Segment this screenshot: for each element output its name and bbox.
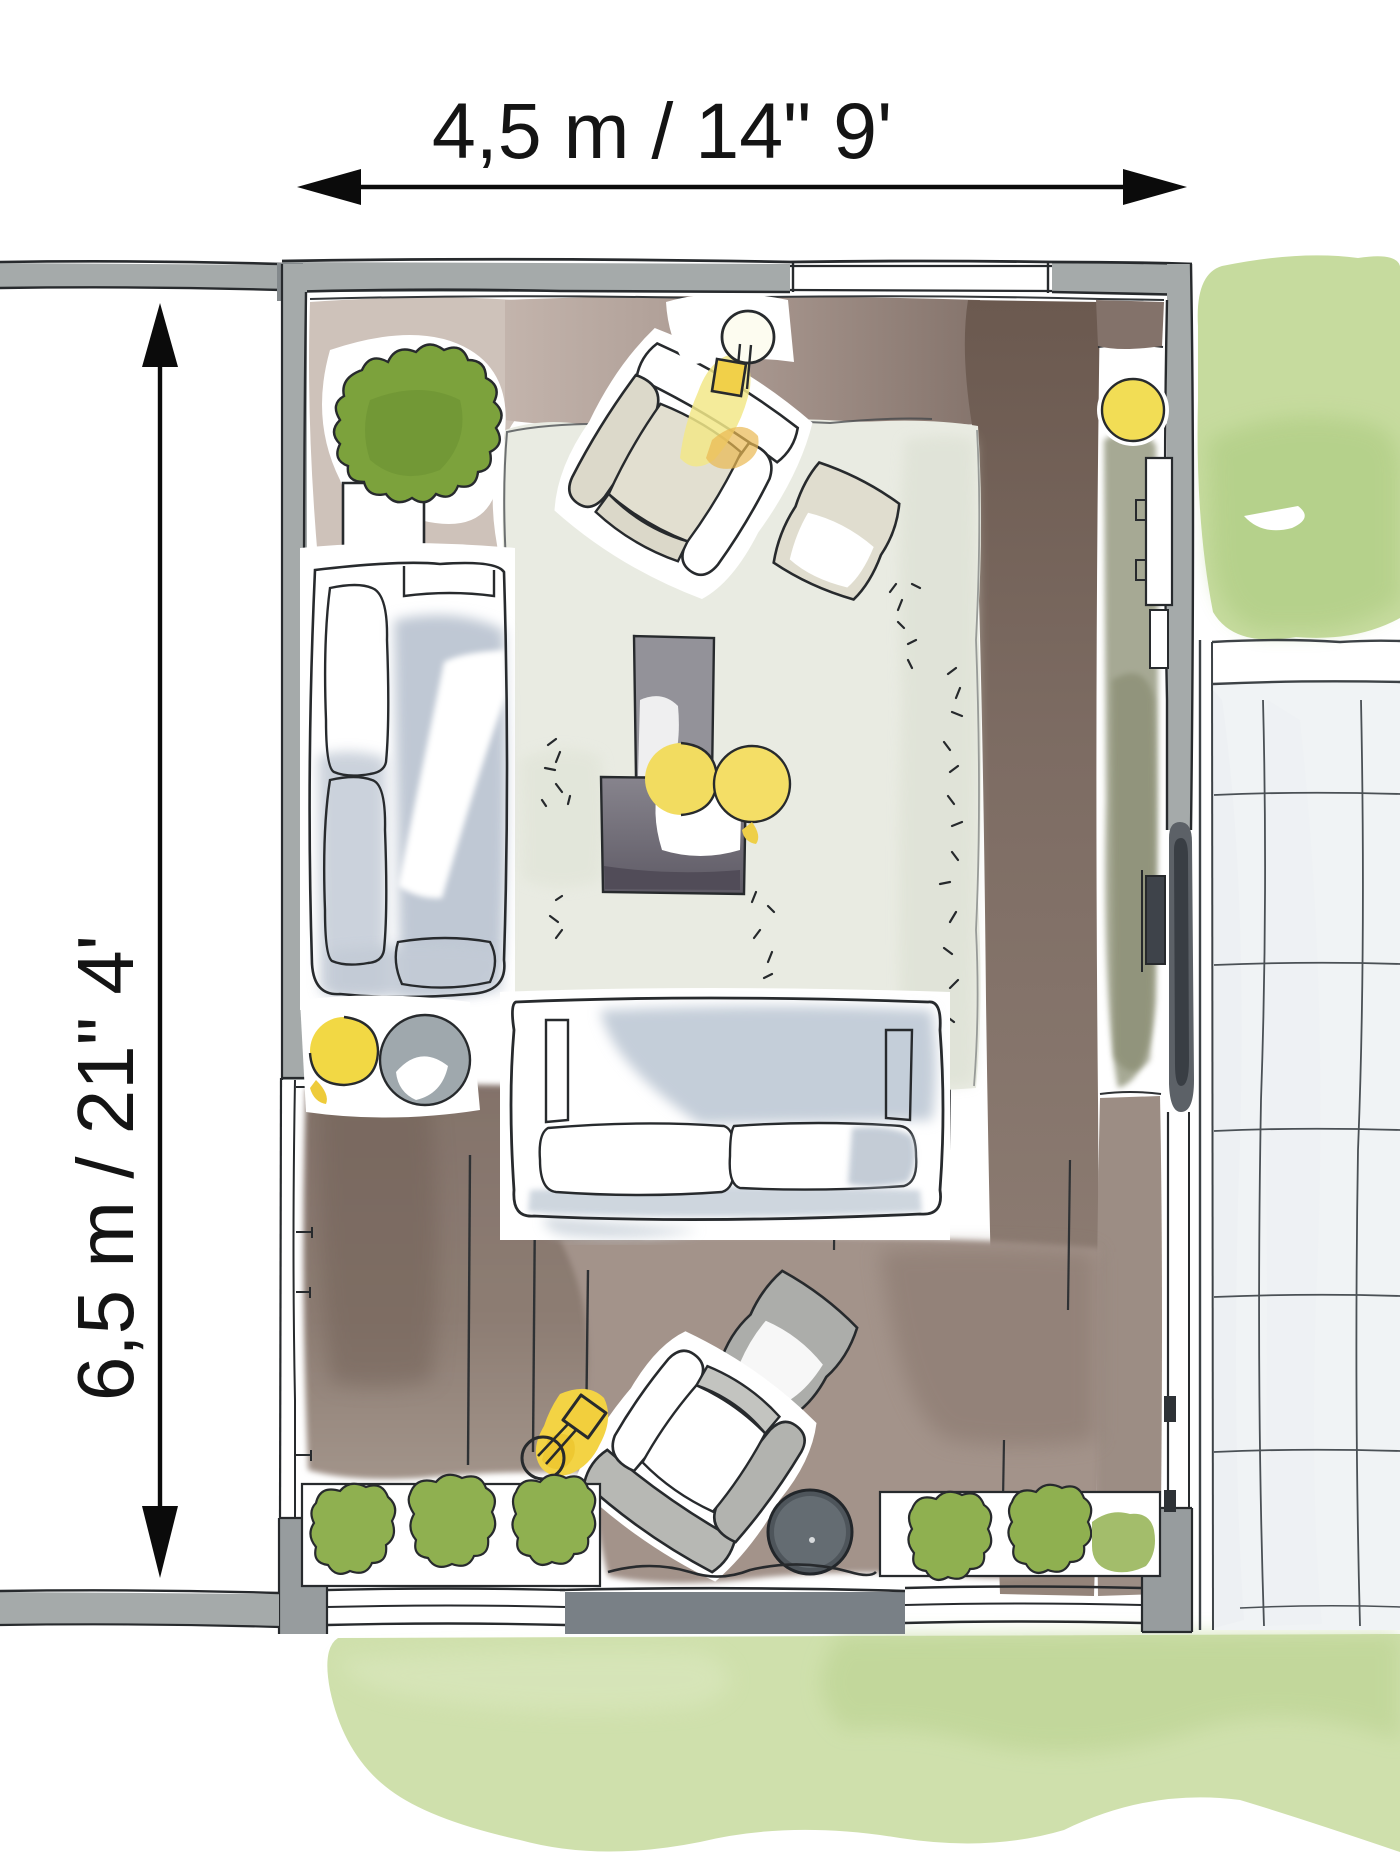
svg-text:6,5 m / 21" 4': 6,5 m / 21" 4' <box>61 935 150 1401</box>
svg-text:4,5 m / 14" 9': 4,5 m / 14" 9' <box>432 86 892 175</box>
